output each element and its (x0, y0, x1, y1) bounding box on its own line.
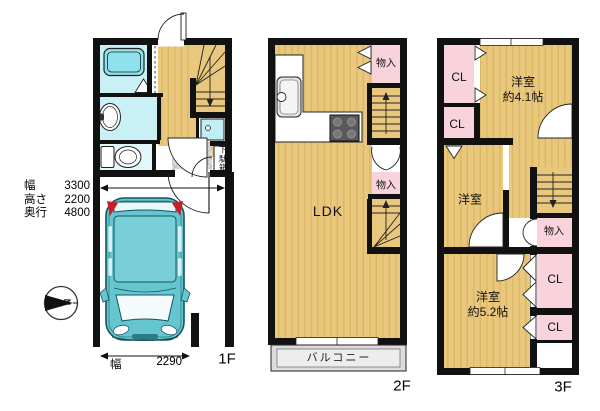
car-icon (100, 198, 190, 341)
storage-label-2f-top: 物入 (376, 55, 396, 70)
closet-label-1: CL (451, 70, 466, 84)
garage-dim-height: 高さ2200 (24, 194, 90, 208)
room-52-label: 洋室約5.2帖 (468, 290, 509, 320)
shoe-cabinet-label: 下駄箱 (218, 146, 229, 173)
floor-plan: 幅3300 高さ2200 奥行4800 幅2290 N 下駄箱 1F 物入 物入… (0, 0, 600, 411)
bathtub-icon (104, 49, 144, 76)
room-41-label: 洋室約4.1帖 (503, 75, 544, 105)
compass-north-label: N (62, 299, 72, 306)
garage-dim-depth: 奥行4800 (24, 207, 90, 221)
toilet-icon (101, 147, 141, 168)
stove-icon (330, 115, 359, 141)
room-mid-label: 洋室 (458, 191, 482, 208)
ldk-label: LDK (313, 203, 343, 219)
storage-label-3f: 物入 (544, 223, 564, 238)
closet-label-4: CL (547, 320, 562, 334)
balcony-label: バルコニー (307, 349, 372, 365)
floor-label-3f: 3F (554, 379, 572, 396)
storage-label-2f-mid: 物入 (376, 177, 396, 192)
garage-dimensions: 幅3300 高さ2200 奥行4800 (24, 180, 90, 221)
garage-dim-width: 幅3300 (24, 180, 90, 194)
floor-label-2f: 2F (393, 378, 411, 395)
floor-label-1f: 1F (218, 351, 236, 368)
garage-width-label: 幅2290 (110, 356, 182, 372)
closet-label-3: CL (547, 272, 562, 286)
compass-icon (45, 287, 78, 320)
slop-sink-icon (201, 119, 224, 140)
closet-label-2: CL (449, 117, 464, 131)
floor-plan-drawing (0, 0, 600, 411)
